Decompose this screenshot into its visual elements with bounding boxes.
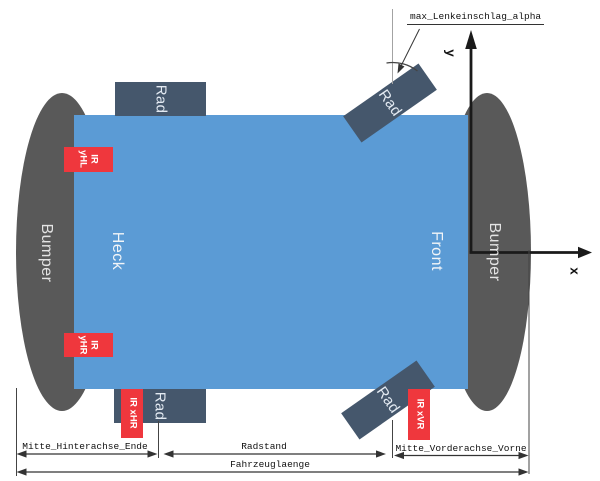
steering-angle-callout: max_Lenkeinschlag_alpha	[407, 11, 544, 25]
y-axis-label: y	[443, 49, 458, 57]
dim-label-vehicle-length: Fahrzeuglaenge	[230, 459, 310, 470]
wheel-rear-left	[115, 82, 206, 116]
ir-sensor-yHL	[64, 147, 113, 172]
dim-arrow-icon	[17, 468, 27, 475]
dim-arrow-icon	[376, 450, 386, 457]
dim-arrow-icon	[519, 468, 529, 475]
x-axis-arrow-icon	[578, 247, 592, 259]
ir-sensor-xHR	[121, 389, 143, 438]
label-leader-arrow-icon	[398, 64, 405, 74]
y-axis-arrow-icon	[465, 30, 477, 49]
dim-label-wheelbase: Radstand	[241, 441, 287, 452]
dim-arrow-icon	[164, 450, 174, 457]
x-axis-label: x	[567, 267, 582, 275]
ir-sensor-yHR	[64, 333, 113, 357]
dim-label-front-overhang: Mitte_Vorderachse_Vorne	[395, 443, 526, 454]
label-leader-line	[401, 29, 420, 66]
ir-sensor-xVR	[408, 389, 430, 440]
vehicle-top-view-diagram: Bumper Bumper Heck Front Rad Rad Rad Rad…	[0, 0, 600, 481]
dim-label-rear-overhang: Mitte_Hinterachse_Ende	[22, 441, 147, 452]
dim-arrow-icon	[148, 450, 158, 457]
chassis-body	[74, 115, 468, 389]
